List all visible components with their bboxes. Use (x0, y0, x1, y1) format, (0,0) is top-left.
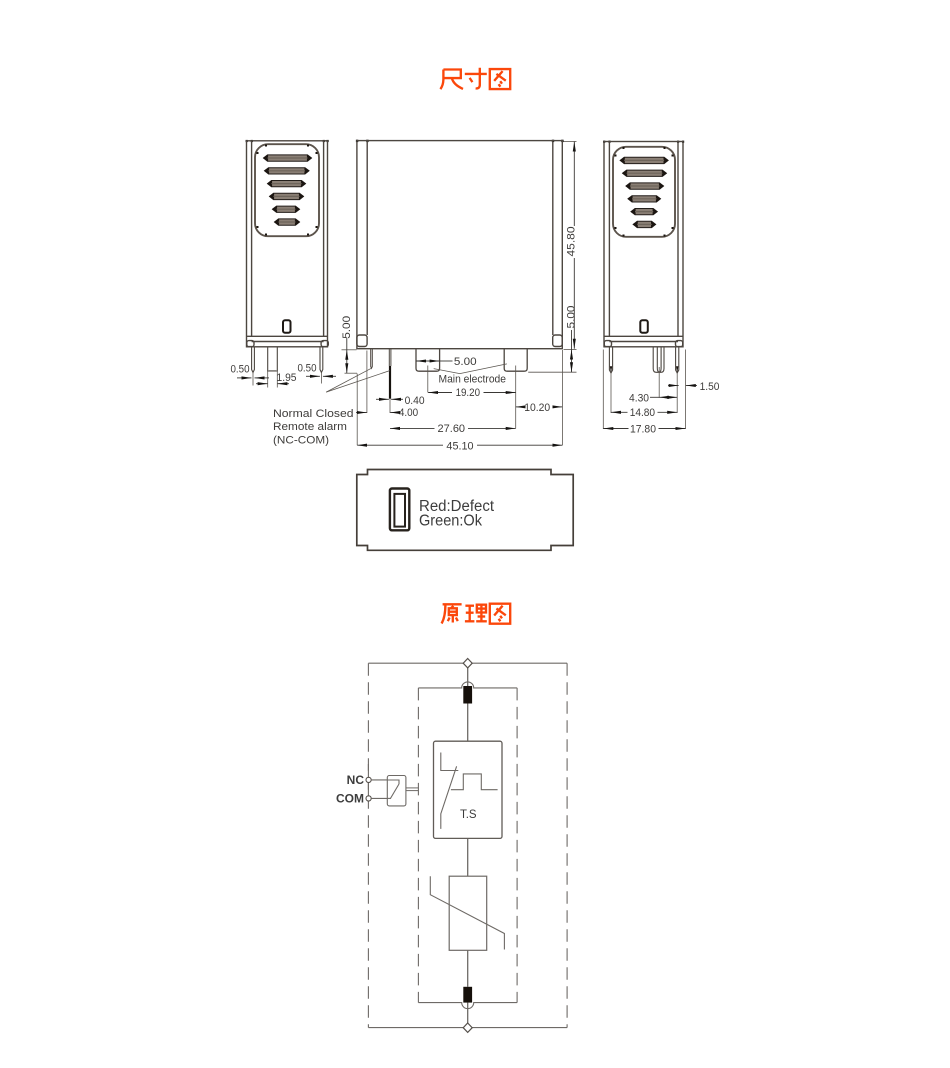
svg-text:0.50: 0.50 (298, 362, 317, 374)
svg-text:14.80: 14.80 (630, 407, 655, 419)
svg-text:10.20: 10.20 (524, 402, 550, 414)
svg-text:0.50: 0.50 (231, 363, 250, 375)
svg-text:5.00: 5.00 (566, 306, 578, 329)
svg-text:45.80: 45.80 (566, 227, 578, 257)
svg-text:19.20: 19.20 (456, 387, 480, 399)
svg-text:1.50: 1.50 (700, 381, 720, 393)
svg-text:17.80: 17.80 (630, 423, 656, 435)
svg-text:0.40: 0.40 (405, 395, 425, 407)
svg-text:T.S: T.S (460, 809, 477, 821)
svg-text:COM: COM (336, 792, 364, 806)
svg-text:Green:Ok: Green:Ok (419, 513, 482, 530)
svg-text:5.00: 5.00 (454, 356, 477, 368)
svg-text:4.30: 4.30 (629, 393, 649, 405)
svg-text:Main electrode: Main electrode (439, 373, 507, 385)
svg-text:1.95: 1.95 (277, 372, 297, 384)
svg-text:5.00: 5.00 (341, 316, 353, 339)
svg-text:NC: NC (347, 773, 365, 787)
svg-text:45.10: 45.10 (446, 440, 473, 452)
svg-text:Remote alarm: Remote alarm (273, 421, 347, 433)
svg-text:27.60: 27.60 (438, 423, 466, 435)
svg-text:Normal Closed: Normal Closed (273, 408, 354, 420)
svg-text:4.00: 4.00 (399, 407, 418, 419)
svg-text:(NC-COM): (NC-COM) (273, 434, 329, 446)
